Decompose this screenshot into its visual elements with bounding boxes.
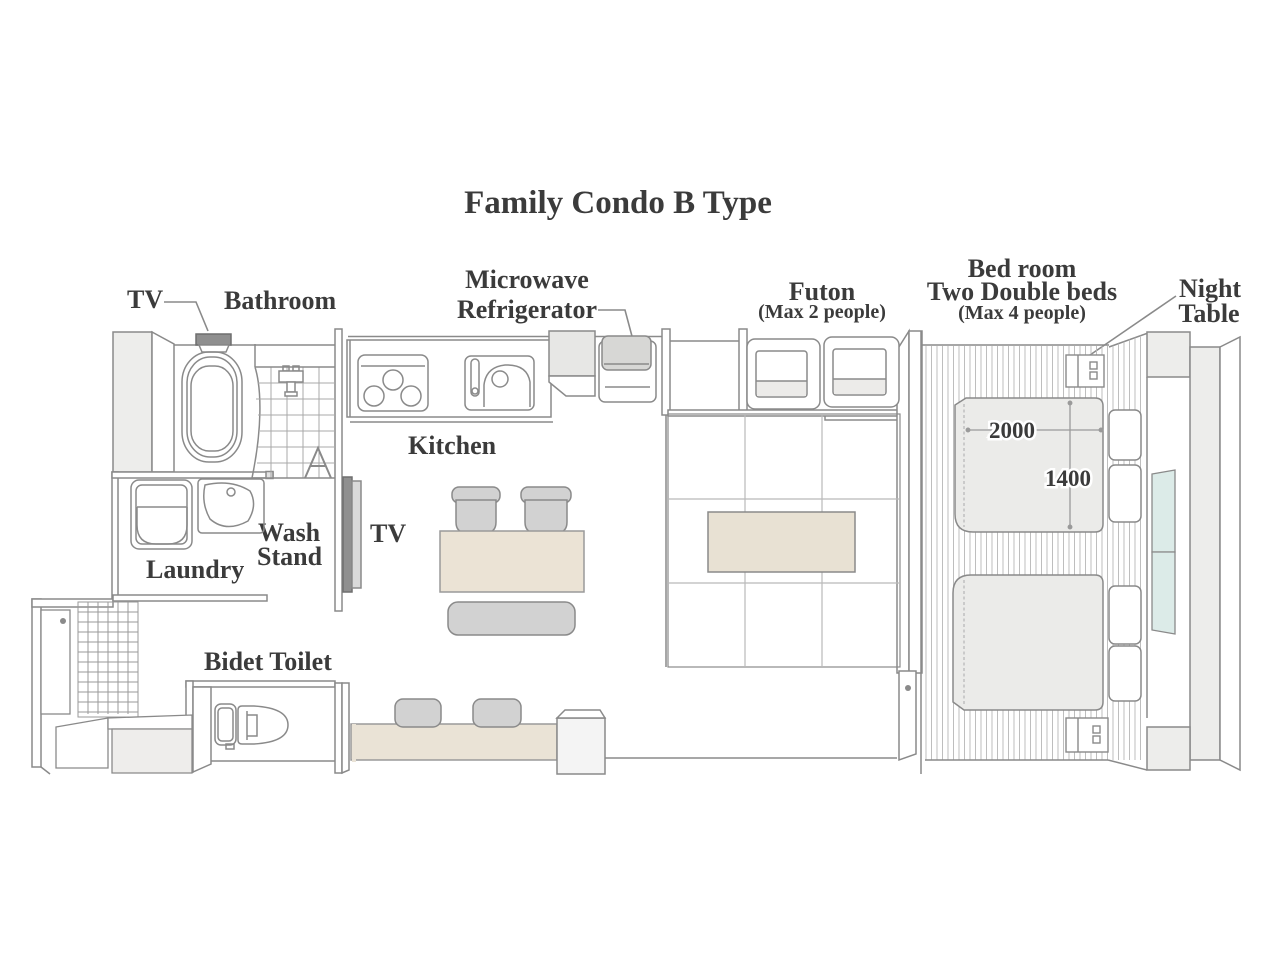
svg-text:2000: 2000: [989, 418, 1035, 443]
svg-text:Laundry: Laundry: [146, 555, 244, 584]
svg-text:Kitchen: Kitchen: [408, 431, 497, 460]
svg-text:TV: TV: [370, 519, 406, 548]
svg-text:Bidet Toilet: Bidet Toilet: [204, 647, 332, 676]
svg-text:Bathroom: Bathroom: [224, 286, 337, 315]
svg-text:Microwave: Microwave: [465, 265, 589, 294]
svg-text:Refrigerator: Refrigerator: [457, 295, 597, 324]
svg-text:Table: Table: [1178, 299, 1239, 328]
svg-text:(Max 4 people): (Max 4 people): [958, 302, 1086, 324]
svg-text:Family Condo B Type: Family Condo B Type: [464, 185, 772, 221]
svg-text:(Max 2 people): (Max 2 people): [758, 301, 886, 323]
svg-text:Stand: Stand: [257, 542, 323, 571]
svg-text:TV: TV: [127, 285, 163, 314]
svg-text:1400: 1400: [1045, 466, 1091, 491]
